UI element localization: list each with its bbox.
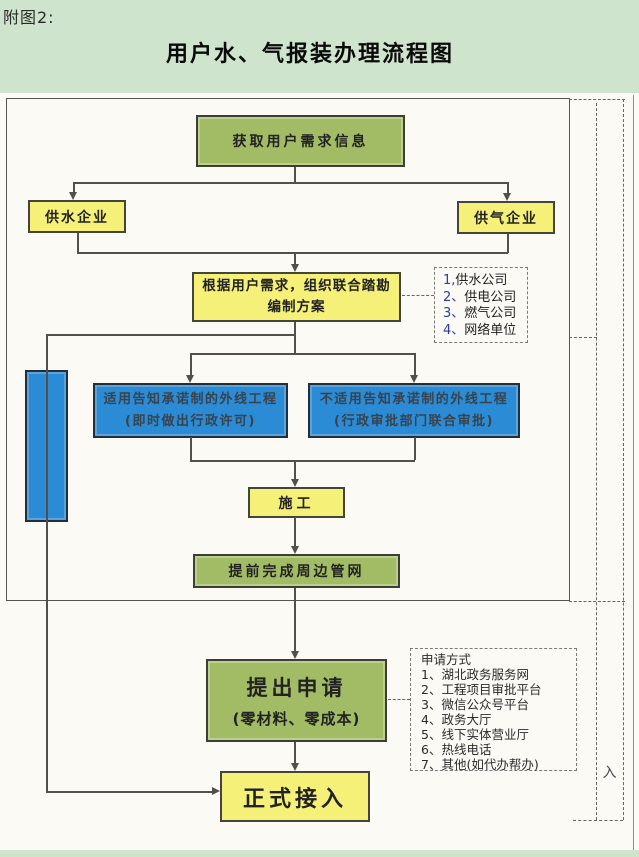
dashed-connector-line bbox=[573, 820, 623, 821]
connector-line bbox=[46, 334, 295, 336]
page-edge-line bbox=[633, 95, 634, 850]
connector-line bbox=[414, 437, 416, 460]
apply-method-item: 5、线下实体营业厅 bbox=[421, 727, 576, 742]
supplier-item: 4、网络单位 bbox=[443, 323, 527, 340]
connector-line bbox=[77, 233, 79, 253]
page-title: 用户水、气报装办理流程图 bbox=[0, 36, 620, 68]
connector-line bbox=[294, 167, 296, 183]
connector-line bbox=[77, 252, 508, 254]
connector-line bbox=[414, 353, 416, 377]
arrowhead-down bbox=[186, 375, 194, 383]
node-formal-connection: 正式接入 bbox=[220, 771, 370, 822]
connector-line bbox=[294, 517, 296, 548]
access-lane-label: 入 bbox=[596, 762, 623, 782]
node-label-line1: 提出申请 bbox=[247, 672, 347, 702]
apply-method-item: 3、微信公众号平台 bbox=[421, 697, 576, 712]
apply-methods-heading: 申请方式 bbox=[421, 652, 576, 667]
apply-method-item: 1、湖北政务服务网 bbox=[421, 667, 576, 682]
connector-line bbox=[190, 353, 415, 355]
node-label: 供水企业 bbox=[45, 207, 109, 227]
arrowhead-right bbox=[212, 787, 220, 795]
dashed-connector-line bbox=[596, 103, 597, 820]
apply-method-item: 4、政务大厅 bbox=[421, 712, 576, 727]
node-submit-application: 提出申请 (零材料、零成本) bbox=[206, 659, 387, 742]
connector-line bbox=[73, 182, 508, 184]
supplier-number: 1, bbox=[443, 273, 455, 288]
arrowhead-down bbox=[291, 651, 299, 659]
arrowhead-down bbox=[291, 763, 299, 771]
node-label: 提前完成周边管网 bbox=[229, 561, 365, 581]
node-label: 供气企业 bbox=[474, 208, 538, 228]
dashed-connector-line bbox=[569, 601, 625, 602]
node-water-company: 供水企业 bbox=[28, 200, 126, 233]
arrowhead-down bbox=[69, 192, 77, 200]
supplier-number: 2、 bbox=[443, 290, 464, 305]
connector-line bbox=[46, 334, 48, 792]
connector-line bbox=[294, 460, 296, 481]
dashed-connector-line bbox=[623, 99, 624, 820]
arrowhead-down bbox=[291, 479, 299, 487]
connector-line bbox=[294, 588, 296, 653]
supplier-name: 供电公司 bbox=[464, 290, 516, 305]
node-label-line1: 根据用户需求，组织联合踏勘 bbox=[202, 276, 391, 297]
connector-line bbox=[190, 437, 192, 460]
node-gas-company: 供气企业 bbox=[457, 201, 555, 234]
supplier-item: 1,供水公司 bbox=[443, 273, 527, 290]
node-label: 正式接入 bbox=[243, 781, 347, 813]
arrowhead-down bbox=[291, 264, 299, 272]
node-label-line2: (行政审批部门联合审批) bbox=[334, 411, 494, 433]
dashed-connector-line bbox=[569, 337, 597, 338]
connector-line bbox=[46, 791, 212, 793]
node-pipeline-completed: 提前完成周边管网 bbox=[193, 554, 400, 588]
connector-line bbox=[190, 460, 415, 462]
node-label-line1: 不适用告知承诺制的外线工程 bbox=[320, 389, 509, 411]
node-acquire-user-demand: 获取用户需求信息 bbox=[196, 115, 405, 167]
connector-line bbox=[190, 353, 192, 377]
node-joint-survey-plan: 根据用户需求，组织联合踏勘 编制方案 bbox=[192, 272, 401, 322]
flowchart-panel: 获取用户需求信息 供水企业 供气企业 根据用户需求，组织联合踏勘 编制方案 1,… bbox=[0, 93, 639, 850]
arrowhead-down bbox=[291, 546, 299, 554]
supplier-item: 3、燃气公司 bbox=[443, 306, 527, 323]
node-no-promise-outline-project: 不适用告知承诺制的外线工程 (行政审批部门联合审批) bbox=[308, 383, 520, 438]
supplier-item: 2、供电公司 bbox=[443, 290, 527, 307]
supplier-name: 网络单位 bbox=[464, 323, 516, 338]
dashed-connector-line bbox=[569, 99, 625, 100]
supplier-number: 4、 bbox=[443, 323, 464, 338]
node-label-line2: (即时做出行政许可) bbox=[125, 411, 256, 433]
node-construction: 施工 bbox=[248, 487, 345, 518]
node-label-line1: 适用告知承诺制的外线工程 bbox=[103, 389, 277, 411]
apply-methods-note: 申请方式 1、湖北政务服务网 2、工程项目审批平台 3、微信公众号平台 4、政务… bbox=[410, 648, 577, 771]
figure-label: 附图2: bbox=[3, 4, 55, 28]
dashed-connector-line bbox=[388, 699, 410, 700]
apply-method-item: 2、工程项目审批平台 bbox=[421, 682, 576, 697]
supplier-name: 供水公司 bbox=[455, 273, 507, 288]
node-label: 获取用户需求信息 bbox=[233, 131, 369, 151]
node-label-line2: (零材料、零成本) bbox=[233, 708, 361, 729]
apply-method-item: 7、其他(如代办帮办) bbox=[421, 757, 576, 772]
arrowhead-down bbox=[410, 375, 418, 383]
apply-method-item: 6、热线电话 bbox=[421, 742, 576, 757]
supplier-number: 3、 bbox=[443, 306, 464, 321]
node-label-line2: 编制方案 bbox=[268, 297, 326, 318]
connector-line bbox=[294, 322, 296, 353]
node-promise-outline-project: 适用告知承诺制的外线工程 (即时做出行政许可) bbox=[93, 383, 288, 438]
connector-line bbox=[507, 234, 509, 253]
flowchart-border bbox=[6, 98, 570, 601]
suppliers-note: 1,供水公司 2、供电公司 3、燃气公司 4、网络单位 bbox=[434, 267, 528, 343]
node-label: 施工 bbox=[279, 493, 315, 513]
dashed-connector-line bbox=[402, 295, 434, 296]
arrowhead-down bbox=[503, 193, 511, 201]
supplier-name: 燃气公司 bbox=[464, 306, 516, 321]
